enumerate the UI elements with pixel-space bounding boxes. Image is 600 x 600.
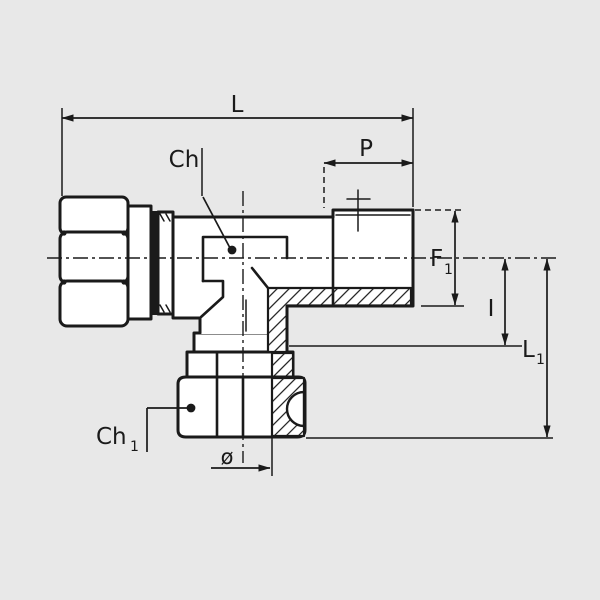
nut-facet-dimple xyxy=(61,230,66,235)
drawing-canvas: L Ch P F 1 I xyxy=(0,0,600,600)
nut-facet-dimple xyxy=(61,279,66,284)
dimension-P: P xyxy=(324,136,413,208)
left-nut-facet-top xyxy=(60,197,128,234)
label-P: P xyxy=(359,136,373,162)
nut-facet-dimple xyxy=(121,230,126,235)
label-I: I xyxy=(488,296,495,322)
label-diameter: ø xyxy=(221,445,234,469)
label-L1-subscript: 1 xyxy=(536,352,545,368)
fitting-part xyxy=(60,190,413,437)
washer-ring xyxy=(158,212,173,314)
tee-fitting-technical-drawing: L Ch P F 1 I xyxy=(0,0,600,600)
label-F1: F xyxy=(430,246,443,272)
dimension-diameter: ø xyxy=(211,437,272,476)
label-F1-subscript: 1 xyxy=(444,262,453,278)
left-nut-facet-bottom xyxy=(60,281,128,326)
nut-facet-dimple xyxy=(121,279,126,284)
ferrule-section-hatch xyxy=(272,353,293,377)
label-L1: L xyxy=(522,337,535,363)
label-Ch: Ch xyxy=(169,147,200,173)
leader-dot xyxy=(187,404,196,413)
branch-fill xyxy=(200,288,268,334)
label-L: L xyxy=(231,92,244,118)
section-hatch-elbow xyxy=(268,288,411,352)
label-Ch1: Ch xyxy=(96,424,127,450)
label-Ch1-subscript: 1 xyxy=(130,439,139,455)
leader-dot xyxy=(228,246,237,255)
nut-collar xyxy=(128,206,151,319)
